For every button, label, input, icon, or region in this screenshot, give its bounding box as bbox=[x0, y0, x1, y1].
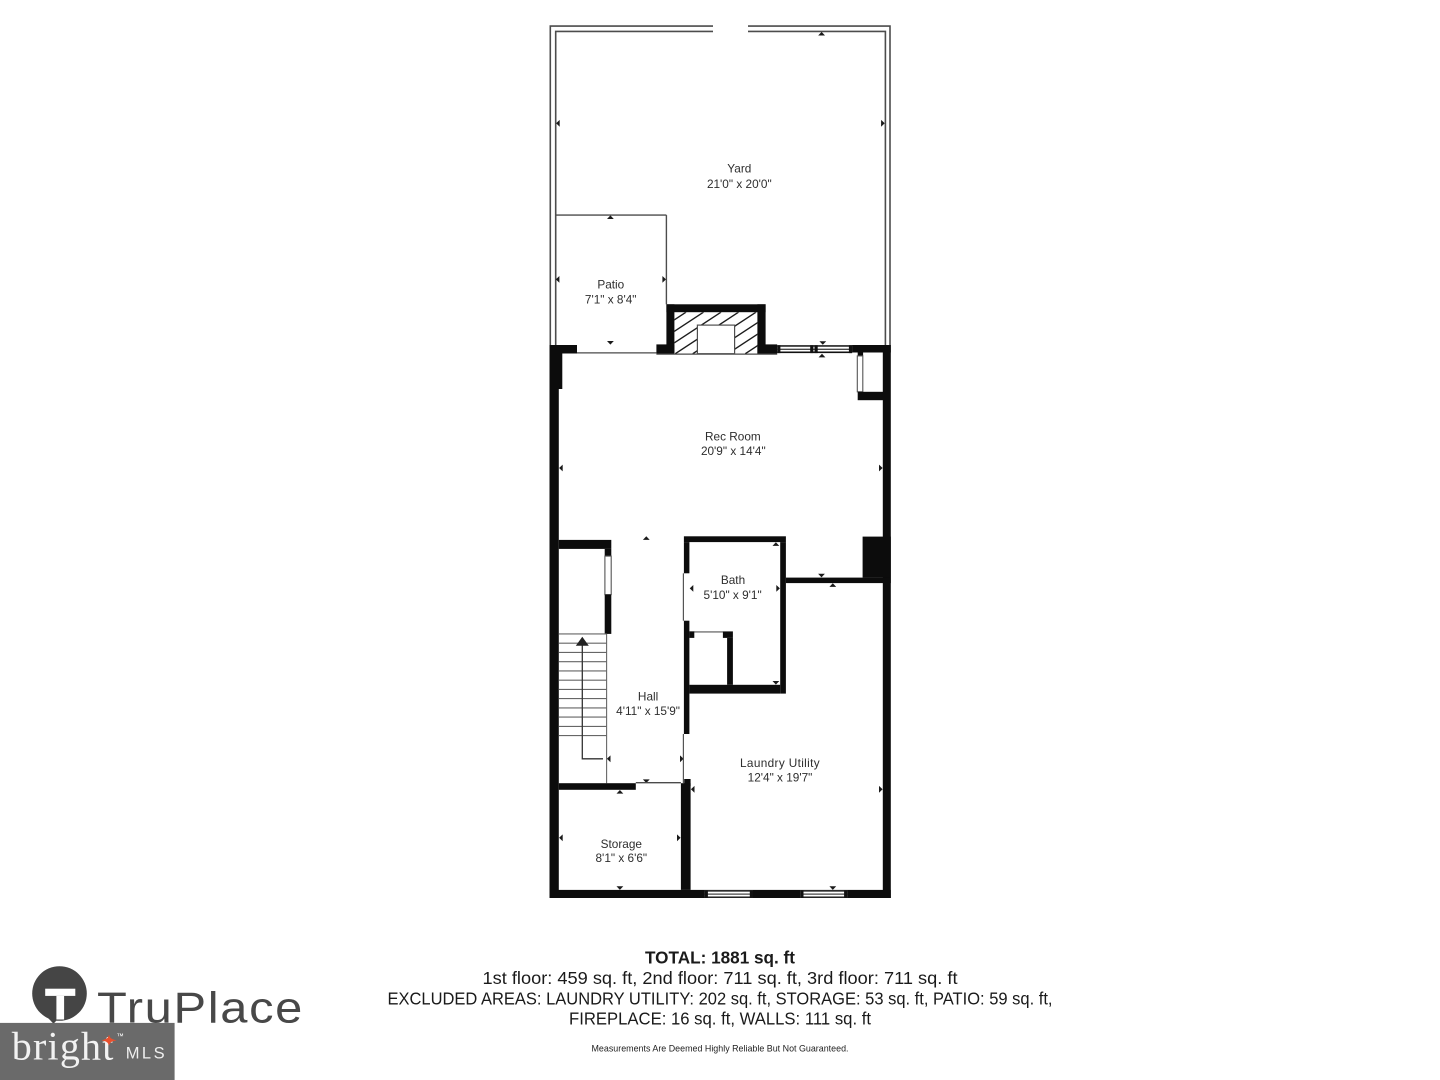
svg-text:Yard: Yard bbox=[727, 162, 751, 176]
svg-text:™: ™ bbox=[117, 1032, 125, 1041]
svg-text:1st floor: 459 sq. ft, 2nd flo: 1st floor: 459 sq. ft, 2nd floor: 711 sq… bbox=[483, 968, 958, 988]
svg-text:Patio: Patio bbox=[597, 278, 624, 292]
svg-text:20'9" x 14'4": 20'9" x 14'4" bbox=[701, 444, 766, 458]
svg-text:Rec Room: Rec Room bbox=[705, 429, 761, 443]
svg-text:7'1" x 8'4": 7'1" x 8'4" bbox=[585, 292, 637, 306]
svg-text:8'1" x 6'6": 8'1" x 6'6" bbox=[596, 851, 648, 865]
svg-text:Hall: Hall bbox=[638, 690, 658, 704]
svg-text:EXCLUDED AREAS: LAUNDRY UTILIT: EXCLUDED AREAS: LAUNDRY UTILITY: 202 sq.… bbox=[388, 989, 1053, 1009]
svg-text:MLS: MLS bbox=[126, 1044, 167, 1062]
svg-text:bright: bright bbox=[12, 1024, 115, 1069]
svg-text:Measurements Are Deemed Highly: Measurements Are Deemed Highly Reliable … bbox=[592, 1044, 849, 1055]
svg-text:4'11" x 15'9": 4'11" x 15'9" bbox=[616, 704, 680, 718]
svg-text:Laundry Utility: Laundry Utility bbox=[740, 756, 820, 770]
svg-text:Storage: Storage bbox=[601, 837, 643, 851]
svg-text:Bath: Bath bbox=[721, 573, 745, 587]
svg-text:21'0" x 20'0": 21'0" x 20'0" bbox=[707, 177, 772, 191]
svg-text:FIREPLACE: 16 sq. ft, WALLS: 1: FIREPLACE: 16 sq. ft, WALLS: 111 sq. ft bbox=[569, 1009, 871, 1029]
svg-text:12'4" x 19'7": 12'4" x 19'7" bbox=[748, 771, 813, 785]
svg-text:5'10" x 9'1": 5'10" x 9'1" bbox=[704, 588, 762, 602]
svg-text:TOTAL: 1881 sq. ft: TOTAL: 1881 sq. ft bbox=[645, 948, 795, 968]
